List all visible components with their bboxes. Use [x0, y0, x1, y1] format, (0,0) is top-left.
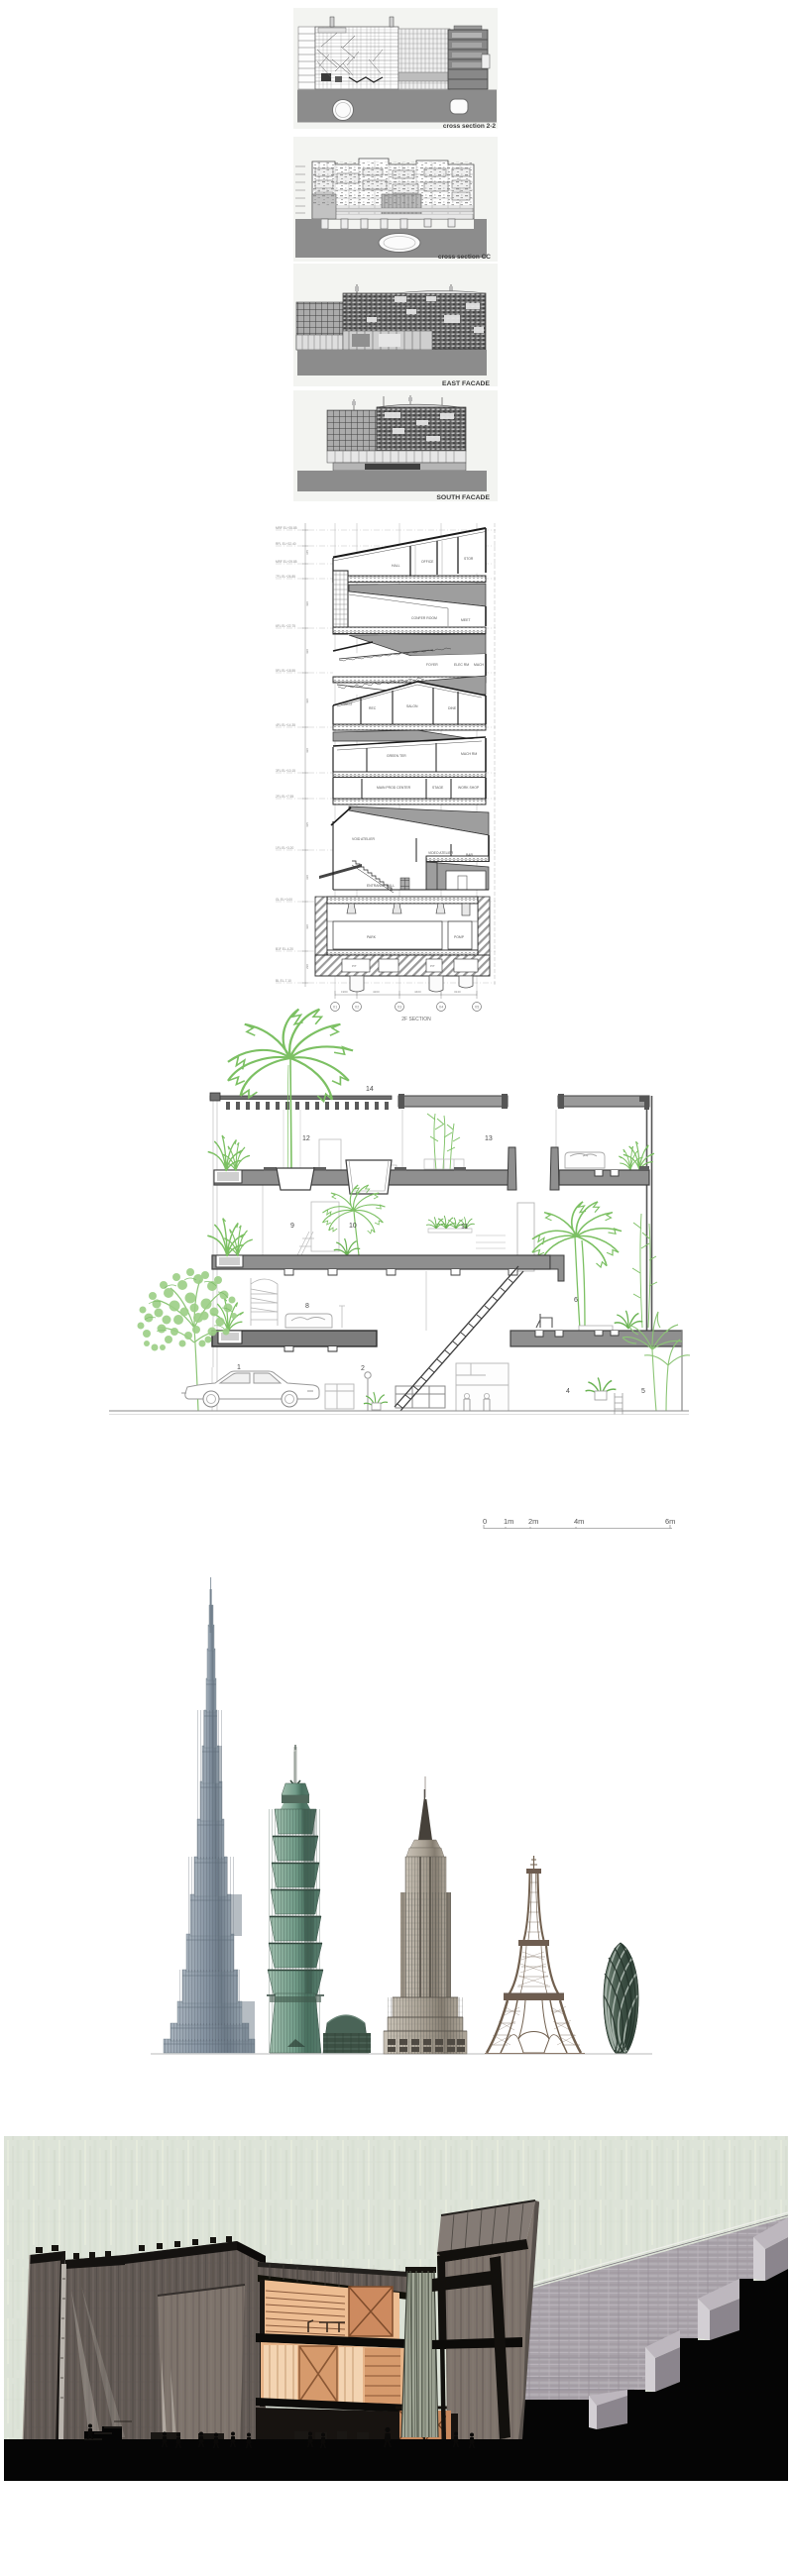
svg-text:PIT: PIT [352, 964, 357, 968]
svg-text:SOUTH FACADE: SOUTH FACADE [436, 494, 490, 501]
svg-text:420: 420 [305, 698, 309, 703]
svg-text:11: 11 [461, 1224, 468, 1231]
svg-text:290: 290 [305, 964, 309, 969]
svg-text:B1F EL-4.20: B1F EL-4.20 [276, 947, 293, 951]
svg-text:RFL EL+32.40: RFL EL+32.40 [276, 542, 296, 546]
svg-text:4: 4 [566, 1388, 570, 1395]
svg-text:SALON: SALON [406, 704, 418, 708]
svg-text:7FL EL+26.85: 7FL EL+26.85 [276, 575, 295, 579]
svg-text:X3: X3 [397, 1006, 401, 1010]
svg-text:1FL EL+3.20: 1FL EL+3.20 [276, 846, 293, 850]
svg-text:0: 0 [483, 1517, 487, 1526]
svg-text:MACH: MACH [474, 663, 485, 667]
svg-text:6m: 6m [665, 1517, 675, 1526]
svg-text:ENTRANCE HALL: ENTRANCE HALL [367, 884, 395, 888]
svg-text:BL EL-7.10: BL EL-7.10 [276, 979, 291, 983]
svg-text:2m: 2m [528, 1517, 538, 1526]
svg-text:VOID ATELIER: VOID ATELIER [352, 837, 375, 841]
svg-text:320: 320 [305, 875, 309, 880]
svg-text:HALL: HALL [392, 564, 400, 568]
svg-text:6FL EL+22.75: 6FL EL+22.75 [276, 624, 295, 628]
svg-text:ELEC RM: ELEC RM [454, 663, 469, 667]
svg-text:X4: X4 [439, 1006, 443, 1010]
svg-text:8: 8 [305, 1303, 309, 1310]
svg-text:GUEST: GUEST [341, 702, 353, 706]
svg-text:2F SECTION: 2F SECTION [401, 1017, 431, 1022]
svg-text:EAST FACADE: EAST FACADE [442, 380, 490, 387]
svg-text:5FL EL+18.55: 5FL EL+18.55 [276, 669, 295, 673]
svg-text:420: 420 [305, 601, 309, 606]
svg-text:GREEN TER: GREEN TER [387, 754, 406, 758]
svg-text:MEET: MEET [461, 618, 470, 622]
svg-text:4400: 4400 [414, 990, 421, 994]
svg-text:FOYER: FOYER [426, 663, 438, 667]
svg-text:X5: X5 [475, 1006, 479, 1010]
svg-text:OFFICE: OFFICE [421, 560, 434, 564]
svg-text:420: 420 [305, 924, 309, 929]
svg-text:4m: 4m [574, 1517, 584, 1526]
svg-text:MACH RM: MACH RM [461, 752, 477, 756]
svg-text:cross section 2-2: cross section 2-2 [443, 123, 496, 130]
svg-text:6: 6 [574, 1297, 578, 1304]
svg-text:DINE: DINE [448, 706, 457, 710]
svg-text:12: 12 [302, 1135, 310, 1142]
svg-text:4200: 4200 [373, 990, 380, 994]
svg-text:PARK: PARK [367, 935, 377, 939]
svg-text:5: 5 [641, 1388, 645, 1395]
svg-text:GL EL+0.00: GL EL+0.00 [276, 898, 292, 902]
svg-text:1m: 1m [504, 1517, 513, 1526]
svg-text:MRF EL+35.85: MRF EL+35.85 [276, 526, 297, 530]
svg-text:WORK SHOP: WORK SHOP [458, 786, 480, 790]
svg-text:14: 14 [366, 1086, 374, 1093]
svg-text:X1: X1 [333, 1006, 337, 1010]
svg-text:2: 2 [361, 1365, 365, 1372]
svg-text:STAGE: STAGE [432, 786, 444, 790]
svg-text:VIDEO ATELIER: VIDEO ATELIER [428, 851, 454, 855]
svg-text:1: 1 [237, 1364, 241, 1371]
svg-text:345: 345 [305, 550, 309, 555]
svg-text:420: 420 [305, 748, 309, 753]
svg-text:2FL EL+7.55: 2FL EL+7.55 [276, 795, 293, 799]
svg-text:X2: X2 [355, 1006, 359, 1010]
svg-text:cross section CC: cross section CC [438, 254, 491, 261]
svg-text:3FL EL+10.15: 3FL EL+10.15 [276, 769, 295, 773]
svg-text:9: 9 [290, 1223, 294, 1230]
svg-text:STOR: STOR [464, 557, 474, 561]
svg-text:4FL EL+14.35: 4FL EL+14.35 [276, 723, 295, 727]
svg-text:MAIN PROD CENTER: MAIN PROD CENTER [377, 786, 411, 790]
svg-text:CONFER ROOM: CONFER ROOM [411, 616, 437, 620]
svg-text:1960: 1960 [341, 990, 348, 994]
svg-text:13: 13 [485, 1135, 493, 1142]
svg-text:REC: REC [369, 706, 377, 710]
svg-text:MRF EL+29.85: MRF EL+29.85 [276, 560, 297, 564]
svg-text:10: 10 [349, 1223, 357, 1230]
svg-text:420: 420 [305, 649, 309, 654]
svg-text:435: 435 [305, 822, 309, 827]
svg-text:POMP: POMP [454, 935, 465, 939]
svg-text:PIT: PIT [430, 964, 435, 968]
svg-text:3240: 3240 [454, 990, 461, 994]
